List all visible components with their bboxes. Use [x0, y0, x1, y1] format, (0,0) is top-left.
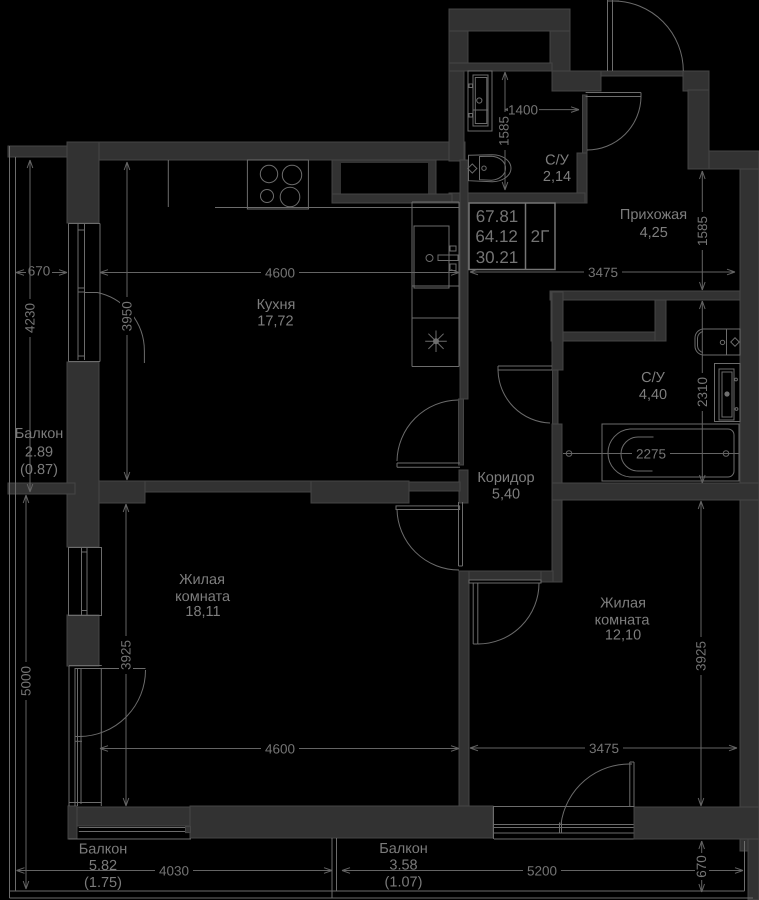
- svg-text:С/У: С/У: [641, 370, 666, 386]
- svg-text:Жилая: Жилая: [179, 572, 225, 588]
- svg-text:4,25: 4,25: [640, 225, 668, 241]
- svg-text:5200: 5200: [527, 864, 557, 879]
- svg-text:3475: 3475: [589, 741, 619, 756]
- svg-text:1585: 1585: [695, 216, 710, 246]
- svg-text:(1.75): (1.75): [84, 875, 122, 891]
- svg-text:64.12: 64.12: [475, 227, 518, 246]
- svg-text:комната: комната: [595, 613, 651, 629]
- svg-text:(0.87): (0.87): [20, 462, 58, 478]
- svg-text:2,14: 2,14: [543, 169, 571, 185]
- svg-text:1400: 1400: [508, 103, 538, 118]
- svg-text:67.81: 67.81: [476, 207, 519, 226]
- svg-text:670: 670: [694, 855, 709, 878]
- svg-text:5,40: 5,40: [492, 487, 520, 503]
- svg-text:Кухня: Кухня: [257, 297, 296, 313]
- svg-text:Жилая: Жилая: [600, 596, 646, 612]
- svg-text:(1.07): (1.07): [385, 875, 423, 891]
- svg-text:4,40: 4,40: [639, 387, 667, 403]
- svg-text:2.89: 2.89: [25, 445, 53, 461]
- svg-text:Балкон: Балкон: [379, 841, 428, 857]
- svg-text:12,10: 12,10: [605, 628, 641, 644]
- svg-text:4230: 4230: [23, 303, 38, 333]
- svg-text:17,72: 17,72: [257, 314, 293, 330]
- svg-text:комната: комната: [175, 589, 231, 605]
- svg-text:5.82: 5.82: [89, 858, 117, 874]
- svg-text:3925: 3925: [694, 641, 709, 671]
- svg-text:Прихожая: Прихожая: [620, 207, 687, 223]
- svg-text:30.21: 30.21: [476, 248, 519, 267]
- svg-text:3.58: 3.58: [389, 858, 417, 874]
- svg-text:2Г: 2Г: [531, 227, 550, 246]
- svg-text:3950: 3950: [120, 301, 135, 331]
- svg-text:4600: 4600: [265, 742, 295, 757]
- svg-text:1585: 1585: [497, 116, 512, 146]
- svg-text:4600: 4600: [265, 266, 295, 281]
- svg-text:3925: 3925: [119, 640, 134, 670]
- svg-text:Балкон: Балкон: [15, 426, 64, 442]
- svg-text:С/У: С/У: [545, 153, 570, 169]
- svg-text:5000: 5000: [19, 666, 34, 696]
- svg-text:2310: 2310: [695, 377, 710, 407]
- svg-text:670: 670: [28, 264, 51, 279]
- svg-text:4030: 4030: [159, 864, 189, 879]
- svg-text:Балкон: Балкон: [79, 842, 128, 858]
- svg-text:Коридор: Коридор: [477, 470, 534, 486]
- svg-text:2275: 2275: [636, 447, 666, 462]
- svg-text:18,11: 18,11: [185, 604, 220, 620]
- svg-text:3475: 3475: [588, 265, 618, 280]
